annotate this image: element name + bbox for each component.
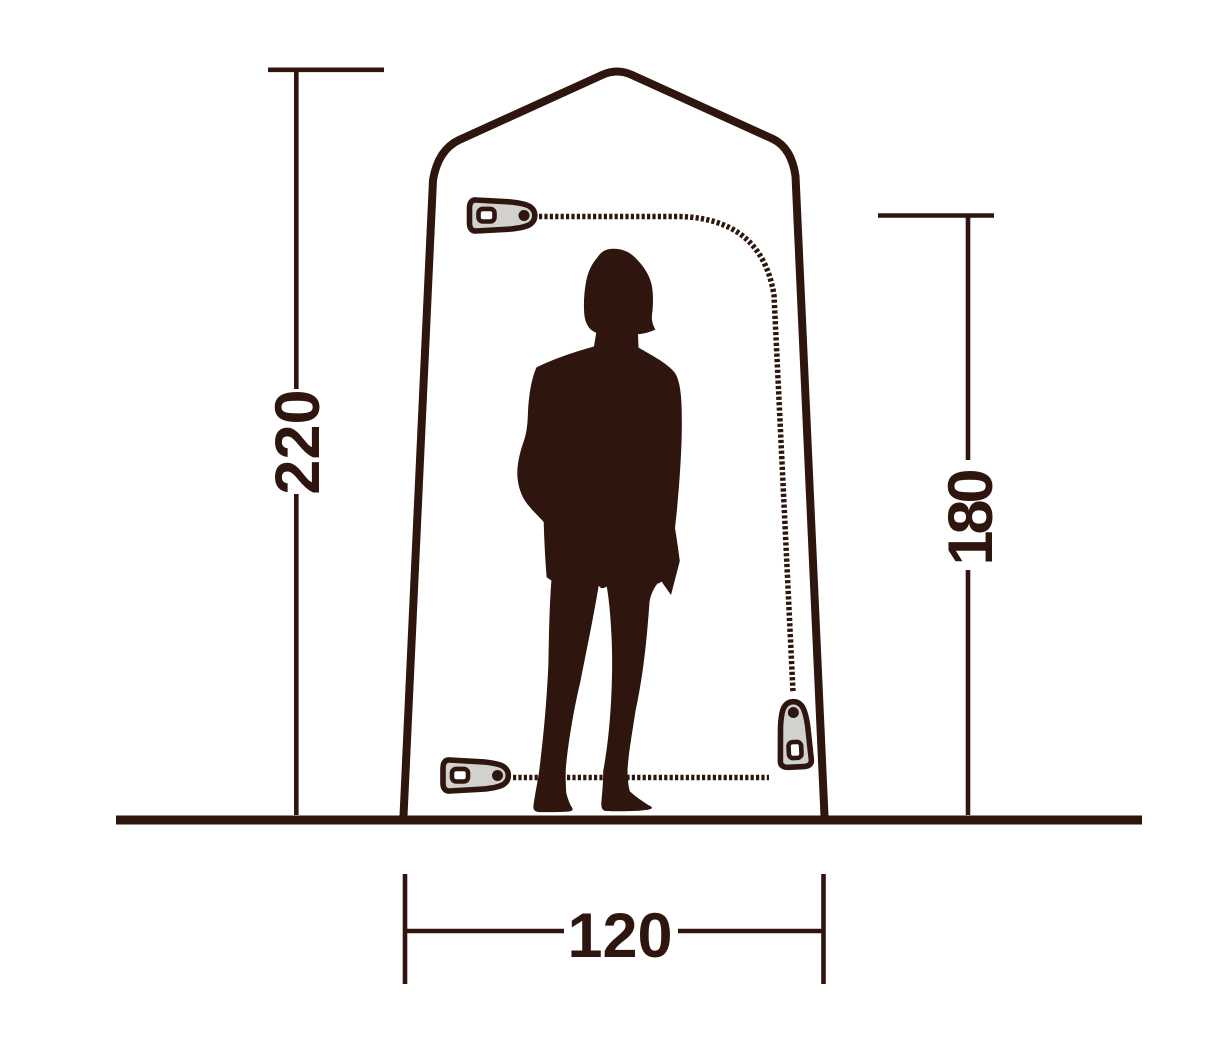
svg-text:180: 180 [936,469,1006,566]
svg-text:220: 220 [263,389,333,494]
svg-text:120: 120 [567,901,672,971]
